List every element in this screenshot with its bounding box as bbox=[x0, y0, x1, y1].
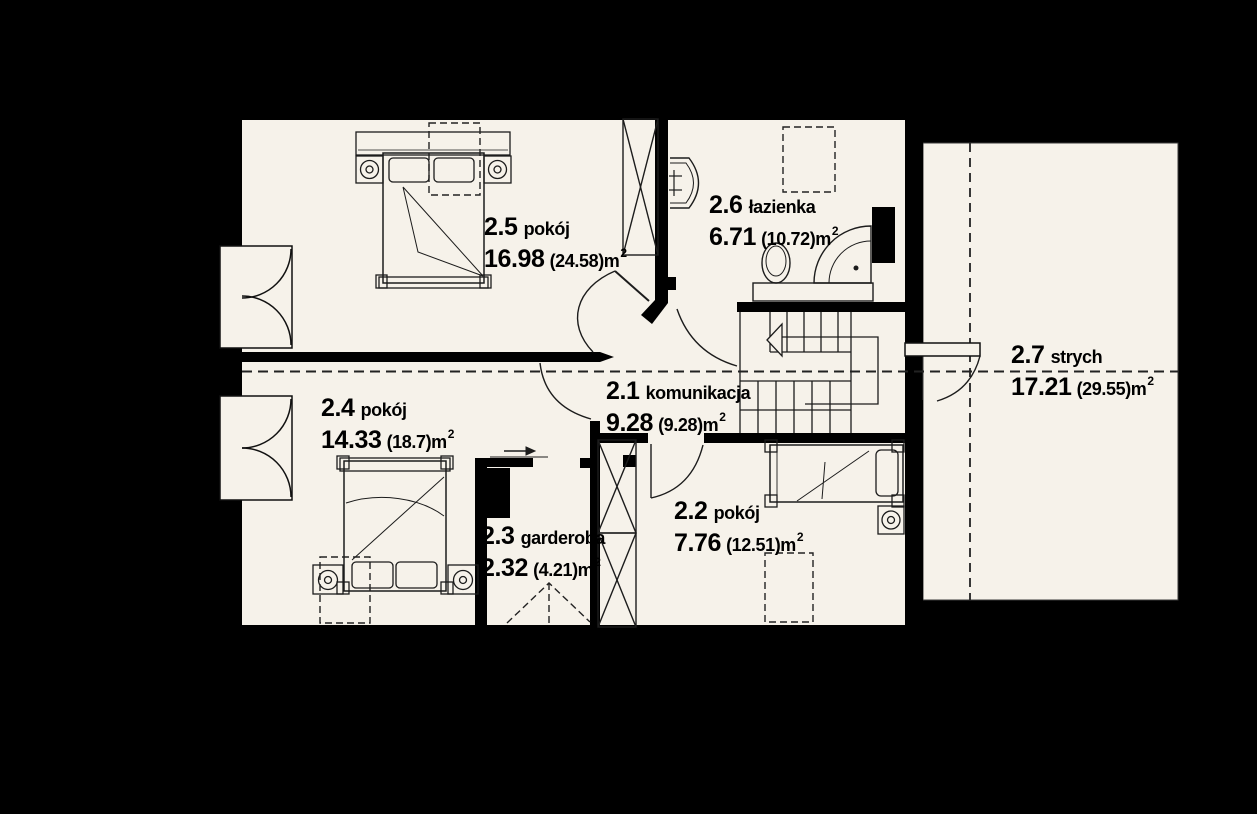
room-name: garderoba bbox=[521, 528, 605, 548]
room-name: strych bbox=[1051, 347, 1103, 367]
wall-divider-rooms bbox=[242, 352, 600, 362]
wall-right-b bbox=[905, 400, 923, 625]
room-number: 2.6 bbox=[709, 191, 743, 219]
room-number: 2.3 bbox=[481, 522, 515, 550]
wall-bath-bottom bbox=[737, 302, 905, 312]
room-number: 2.7 bbox=[1011, 341, 1045, 369]
room-area: 16.98 bbox=[484, 245, 545, 273]
room-label-2-4: 2.4pokój 14.33(18.7)m2 bbox=[321, 394, 454, 459]
wardrobe-block bbox=[483, 468, 510, 518]
room-number: 2.1 bbox=[606, 377, 640, 405]
room-name: łazienka bbox=[749, 197, 816, 217]
room-area: 17.21 bbox=[1011, 373, 1072, 401]
room-area: 2.32 bbox=[481, 554, 528, 582]
room-label-2-2: 2.2pokój 7.76(12.51)m2 bbox=[674, 497, 803, 562]
sliding-door-jamb bbox=[580, 458, 592, 468]
room-number: 2.4 bbox=[321, 394, 355, 422]
room-label-2-1: 2.1komunikacja 9.28(9.28)m2 bbox=[606, 377, 750, 442]
window-bedroom-24-icon bbox=[220, 396, 292, 500]
wall-notch bbox=[668, 277, 676, 290]
room-label-2-7: 2.7strych 17.21(29.55)m2 bbox=[1011, 341, 1154, 406]
room-label-2-6: 2.6łazienka 6.71(10.72)m2 bbox=[709, 191, 838, 256]
room-label-2-3: 2.3garderoba 2.32(4.21)m2 bbox=[481, 522, 605, 587]
wall-left-c bbox=[228, 499, 242, 625]
room-name: komunikacja bbox=[646, 383, 751, 403]
wall-bedroom-bath bbox=[655, 119, 668, 303]
sliding-door-panel bbox=[475, 458, 533, 467]
room-area: 6.71 bbox=[709, 223, 756, 251]
wall-right-a bbox=[905, 106, 923, 343]
wall-bottom bbox=[228, 625, 920, 640]
wall-left-b bbox=[228, 347, 242, 397]
room-number: 2.5 bbox=[484, 213, 518, 241]
room-number: 2.2 bbox=[674, 497, 708, 525]
room-area: 7.76 bbox=[674, 529, 721, 557]
room-name: pokój bbox=[361, 400, 407, 420]
wall-stub-hall bbox=[590, 421, 600, 438]
room-label-2-5: 2.5pokój 16.98(24.58)m2 bbox=[484, 213, 627, 278]
room-name: pokój bbox=[714, 503, 760, 523]
floor-plan-canvas: 2.5pokój 16.98(24.58)m2 2.6łazienka 6.71… bbox=[0, 0, 1257, 814]
window-bedroom-25-icon bbox=[220, 246, 292, 348]
wall-left-a bbox=[228, 106, 242, 247]
chimney-block-bath bbox=[872, 207, 895, 263]
room-area: 9.28 bbox=[606, 409, 653, 437]
room-area: 14.33 bbox=[321, 426, 382, 454]
room-name: pokój bbox=[524, 219, 570, 239]
wall-top bbox=[228, 106, 920, 120]
